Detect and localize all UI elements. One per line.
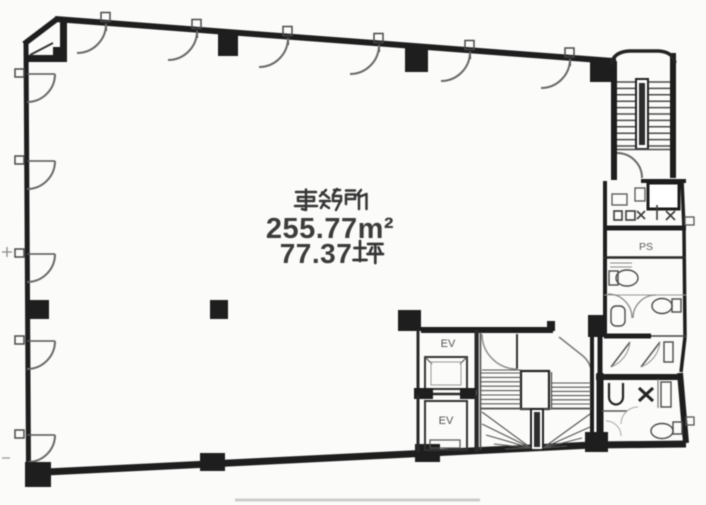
svg-text:PS: PS [639,241,653,253]
svg-text:EV: EV [439,415,454,427]
svg-text:EV: EV [441,338,456,350]
svg-text:77.37: 77.37 [280,238,353,269]
